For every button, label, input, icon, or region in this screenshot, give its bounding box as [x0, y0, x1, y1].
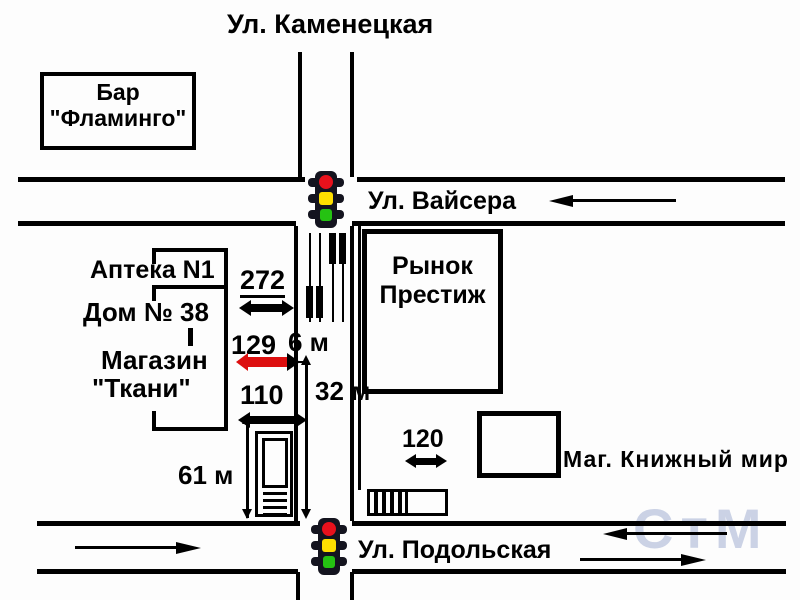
- arrow-down-icon: [301, 509, 311, 519]
- pavilion-stripe: [374, 492, 378, 513]
- arrow-left-icon: [405, 454, 416, 468]
- road-vertical-bottom-right-edge: [350, 572, 354, 600]
- road-vertical-mid-right-edge: [350, 226, 354, 521]
- kiosk-step: [263, 513, 287, 516]
- building-apteka-right-wall: [224, 248, 228, 431]
- traffic-arrow-west-icon: [603, 528, 627, 540]
- street-label-vaysera: Ул. Вайсера: [368, 188, 516, 214]
- road-vaysera-top-right: [357, 177, 785, 182]
- lane-mark-thick: [329, 233, 336, 264]
- arrow-up-icon: [301, 355, 311, 365]
- pavilion-stripe: [398, 492, 402, 513]
- distance-6m-label: 6 м: [288, 329, 329, 356]
- arrow-right-icon: [436, 454, 447, 468]
- pavilion-divider: [405, 492, 408, 513]
- street-map: СтМ Ул. Каменецкая Ул. Вайсера Ул. Подол…: [0, 0, 800, 600]
- traffic-light-green: [323, 556, 335, 568]
- road-vertical-market-side-line: [358, 226, 361, 490]
- distance-110-arrow: [249, 416, 297, 424]
- lane-mark-thick: [339, 233, 346, 264]
- building-label-rynok: Рынок: [362, 253, 503, 279]
- traffic-light-icon: [311, 518, 347, 576]
- building-apteka-entrance-mark: [188, 328, 193, 346]
- building-kiosk-inner: [262, 438, 288, 488]
- distance-129-red-arrow: [246, 357, 288, 367]
- traffic-arrow-east-icon: [176, 542, 201, 554]
- traffic-arrow-line: [570, 199, 676, 202]
- arrow-left-red-icon: [236, 353, 248, 371]
- building-label-magazin: Магазин: [101, 347, 208, 374]
- distance-110-label: 110: [240, 381, 284, 409]
- arrow-down-icon: [242, 509, 252, 519]
- distance-32m-label: 32 м: [315, 378, 370, 405]
- building-apteka-left-stub: [152, 411, 156, 431]
- traffic-light-green: [320, 209, 332, 221]
- traffic-arrow-line: [624, 532, 727, 535]
- road-vertical-bottom-left-edge: [296, 572, 300, 600]
- traffic-light-red: [319, 175, 333, 189]
- building-label-bar: Бар: [40, 80, 196, 104]
- road-vaysera-top-left: [18, 177, 305, 182]
- pavilion-stripe: [382, 492, 386, 513]
- kiosk-step: [263, 492, 287, 495]
- arrow-up-icon: [242, 414, 252, 424]
- lane-mark-thick: [306, 286, 313, 318]
- building-label-prestizh: Престиж: [362, 282, 503, 308]
- building-knizhny-mir: [477, 411, 561, 478]
- road-vaysera-bottom-left: [18, 221, 296, 226]
- building-label-tkani: "Ткани": [92, 375, 191, 402]
- distance-120-label: 120: [402, 426, 444, 452]
- arrow-right-icon: [282, 300, 294, 316]
- road-vertical-top-left-edge: [298, 52, 302, 177]
- building-label-dom38: Дом № 38: [83, 299, 209, 326]
- road-podolskaya-bottom-right: [352, 569, 786, 574]
- kiosk-step: [263, 506, 287, 509]
- distance-61m-line: [246, 422, 249, 518]
- arrow-left-icon: [239, 300, 251, 316]
- street-label-podolskaya: Ул. Подольская: [358, 537, 551, 563]
- building-apteka-top-wall: [152, 248, 228, 252]
- arrow-right-icon: [295, 412, 307, 428]
- building-apteka-divider-wall: [152, 285, 228, 289]
- building-label-knizhny-mir: Маг. Книжный мир: [563, 447, 789, 471]
- traffic-arrow-line: [580, 558, 684, 561]
- road-vertical-mid-left-edge: [294, 226, 298, 521]
- traffic-arrow-east-icon: [681, 554, 706, 566]
- building-apteka-bottom-wall: [152, 427, 228, 431]
- kiosk-step: [263, 499, 287, 502]
- distance-272-arrow: [250, 304, 283, 312]
- building-label-flamingo: "Фламинго": [40, 106, 196, 130]
- building-label-apteka: Аптека N1: [90, 257, 215, 283]
- pavilion-stripe: [390, 492, 394, 513]
- traffic-light-icon: [308, 171, 344, 229]
- road-vaysera-bottom-right: [352, 221, 785, 226]
- distance-61m-label: 61 м: [178, 462, 233, 489]
- road-podolskaya-bottom-left: [37, 569, 298, 574]
- distance-120-arrow: [414, 458, 438, 465]
- street-label-kamenetskaya: Ул. Каменецкая: [227, 10, 433, 38]
- road-vertical-top-right-edge: [350, 52, 354, 177]
- traffic-light-yellow: [319, 192, 333, 205]
- traffic-arrow-west-icon: [549, 195, 573, 207]
- distance-32m-line: [305, 362, 308, 514]
- distance-272-label: 272: [240, 266, 285, 298]
- traffic-arrow-line: [75, 546, 179, 549]
- traffic-light-red: [322, 522, 336, 536]
- watermark: СтМ: [633, 496, 769, 561]
- road-podolskaya-top-left: [37, 521, 300, 526]
- road-podolskaya-top-right: [352, 521, 786, 526]
- traffic-light-yellow: [322, 539, 336, 552]
- lane-mark-thick: [316, 286, 323, 318]
